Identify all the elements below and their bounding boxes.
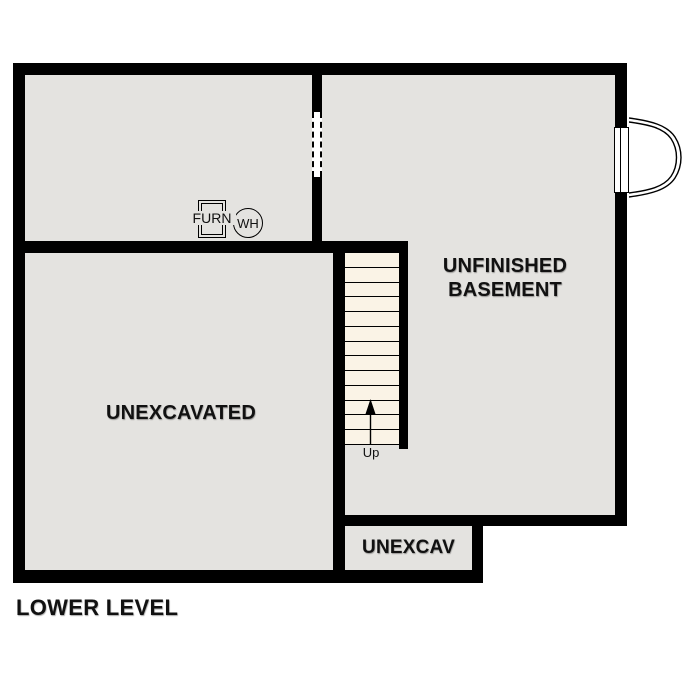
exterior-door	[614, 127, 629, 193]
wall-unexcav-right	[472, 515, 483, 583]
stair-tread	[345, 312, 399, 327]
unfinished-basement-label-line2: BASEMENT	[400, 278, 610, 302]
stair-tread	[345, 297, 399, 312]
unfinished-basement-label: UNFINISHED BASEMENT	[400, 254, 610, 302]
wall-stairwell-left	[333, 241, 345, 583]
stair-tread	[345, 356, 399, 371]
door-leaf-line	[620, 128, 621, 192]
stair-tread	[345, 327, 399, 342]
wall-left	[13, 63, 25, 583]
unexcavated-label: UNEXCAVATED	[81, 401, 281, 425]
water-heater-icon: WH	[233, 208, 263, 238]
stair-tread	[345, 253, 399, 268]
page-title: LOWER LEVEL	[16, 595, 178, 621]
water-heater-label: WH	[237, 216, 259, 231]
furnace-label: FURN	[188, 211, 236, 225]
floor-plan: Up FURN WH UNFINISHED BASEMENT UNEXCAVAT…	[0, 0, 687, 687]
bulkhead-areaway-icon	[629, 110, 687, 205]
stair-tread	[345, 342, 399, 357]
unfinished-basement-label-line1: UNFINISHED	[400, 254, 610, 278]
up-arrow-icon	[363, 398, 378, 446]
stairs-up-label: Up	[351, 446, 391, 460]
unexcav-label: UNEXCAV	[345, 526, 472, 570]
stair-tread	[345, 268, 399, 283]
stair-tread	[345, 371, 399, 386]
stair-tread	[345, 283, 399, 298]
wall-bottom	[13, 570, 483, 583]
wall-opening-dashed	[312, 112, 322, 177]
wall-middle-horizontal	[13, 241, 408, 253]
room-mechanical-area	[25, 75, 312, 241]
